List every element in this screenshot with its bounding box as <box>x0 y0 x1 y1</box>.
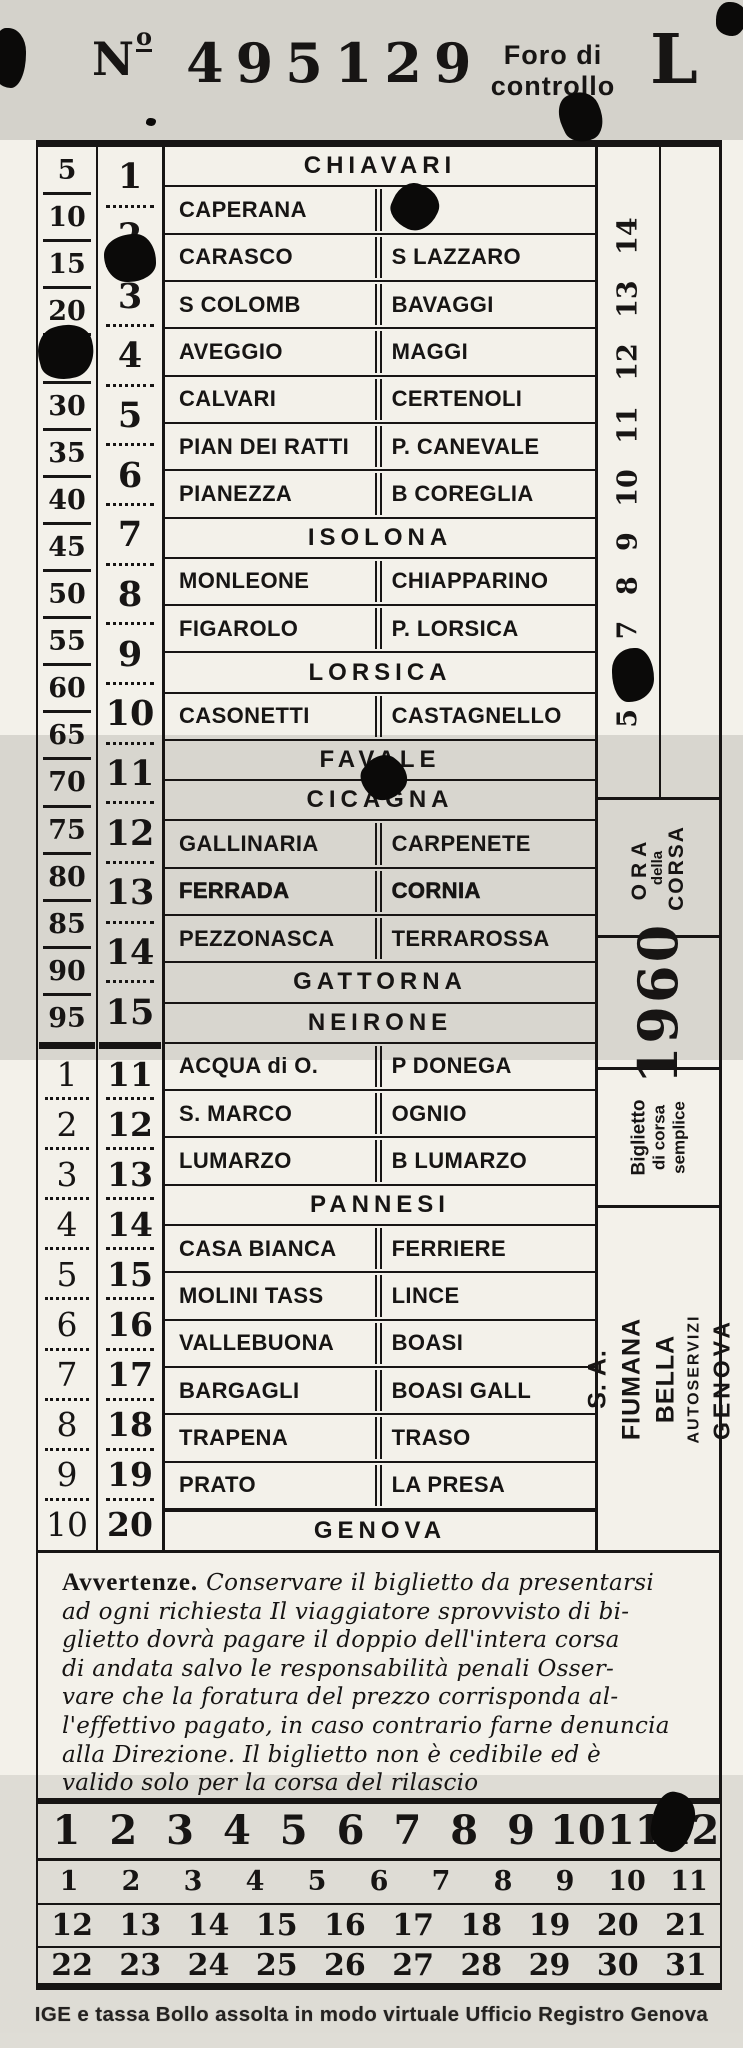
station-section-header: NEIRONE <box>165 1004 595 1044</box>
station-row: PEZZONASCATERRAROSSA <box>165 916 595 963</box>
notice-line: Avvertenze.Conservare il biglietto da pr… <box>62 1569 693 1598</box>
day-number: 21 <box>652 1908 720 1943</box>
station-row: PIAN DEI RATTIP. CANEVALE <box>165 424 595 471</box>
station-row: S COLOMBBAVAGGI <box>165 282 595 329</box>
calendar-days-12-21: 12131415161718192021 <box>38 1905 720 1948</box>
fare-upper-series: 5101520253035404550556065707580859095 <box>38 147 96 1042</box>
column-divider <box>375 1275 382 1316</box>
station-name-right: LA PRESA <box>382 1472 595 1498</box>
station-name-left: CAPERANA <box>165 197 375 223</box>
station-name-right: P. CANEVALE <box>382 434 595 460</box>
fare-value: 60 <box>38 665 96 712</box>
station-name-right: CASTAGNELLO <box>382 703 595 729</box>
day-number: 17 <box>379 1908 447 1943</box>
fare-value: 7 <box>38 1350 96 1400</box>
station-row: MOLINI TASSLINCE <box>165 1273 595 1320</box>
day-number: 22 <box>38 1948 106 1983</box>
fare-value: 40 <box>38 477 96 524</box>
column-divider <box>375 331 382 372</box>
hour-strip: 5 6 7 8 9 10 11 12 13 14 15 16 17 18 19 … <box>598 147 719 1550</box>
station-row: GALLINARIACARPENETE <box>165 821 595 868</box>
stage-number: 15 <box>98 982 162 1042</box>
stage-number: 13 <box>98 1149 162 1199</box>
station-name-right: B LUMARZO <box>382 1148 595 1174</box>
day-number: 16 <box>311 1908 379 1943</box>
fare-value: 8 <box>38 1400 96 1450</box>
section-letter: L <box>650 26 698 94</box>
stage-number: 5 <box>98 386 162 446</box>
column-divider <box>375 284 382 325</box>
day-number: 12 <box>38 1908 106 1943</box>
day-number: 3 <box>162 1866 224 1897</box>
column-divider <box>375 237 382 278</box>
stage-number: 1 <box>98 147 162 207</box>
day-number: 23 <box>106 1948 174 1983</box>
fare-table: 5101520253035404550556065707580859095 12… <box>36 140 722 1553</box>
month-number: 3 <box>152 1807 209 1854</box>
stage-number: 12 <box>98 1099 162 1149</box>
station-row: AVEGGIOMAGGI <box>165 329 595 376</box>
station-row: LUMARZOB LUMARZO <box>165 1138 595 1185</box>
station-row: PRATOLA PRESA <box>165 1463 595 1510</box>
fare-value: 55 <box>38 618 96 665</box>
day-number: 15 <box>243 1908 311 1943</box>
station-name-right: TRASO <box>382 1425 595 1451</box>
notice-line: valido solo per la corsa del rilascio <box>62 1769 693 1798</box>
stage-number: 14 <box>98 923 162 983</box>
series-divider-bar <box>99 1042 161 1049</box>
fare-value: 85 <box>38 901 96 948</box>
punch-hole <box>104 234 156 282</box>
day-number: 4 <box>224 1866 286 1897</box>
station-row: CALVARICERTENOLI <box>165 377 595 424</box>
station-name-left: CASA BIANCA <box>165 1236 375 1262</box>
day-number: 30 <box>584 1948 652 1983</box>
month-number: 2 <box>95 1807 152 1854</box>
stage-number: 17 <box>98 1350 162 1400</box>
station-name-right: FERRIERE <box>382 1236 595 1262</box>
stage-number: 7 <box>98 505 162 565</box>
station-row: FERRADACORNIA <box>165 869 595 916</box>
station-section-header: ISOLONA <box>165 519 595 559</box>
punch-hole <box>612 648 654 702</box>
column-divider <box>375 1417 382 1458</box>
fare-value: 65 <box>38 712 96 759</box>
edge-ink-mark <box>0 28 26 88</box>
notice-line: ad ogni richiesta Il viaggiatore sprovvi… <box>62 1598 693 1627</box>
station-name-right: TERRAROSSA <box>382 926 595 952</box>
column-divider <box>375 608 382 649</box>
station-name-left: PIAN DEI RATTI <box>165 434 375 460</box>
day-number: 27 <box>379 1948 447 1983</box>
station-row: TRAPENATRASO <box>165 1415 595 1462</box>
station-name-left: ACQUA di O. <box>165 1053 375 1079</box>
station-name-left: CALVARI <box>165 386 375 412</box>
station-list: CHIAVARICAPERANARICARASCOS LAZZAROS COLO… <box>165 147 598 1550</box>
fare-value: 15 <box>38 241 96 288</box>
month-number: 8 <box>436 1807 493 1854</box>
day-number: 7 <box>410 1866 472 1897</box>
station-name-left: MONLEONE <box>165 568 375 594</box>
station-name-right: B COREGLIA <box>382 481 595 507</box>
station-name-right: S LAZZARO <box>382 244 595 270</box>
station-name-left: PIANEZZA <box>165 481 375 507</box>
column-divider <box>375 1140 382 1181</box>
station-section-header: GATTORNA <box>165 963 595 1003</box>
day-number: 11 <box>658 1866 720 1897</box>
day-number: 8 <box>472 1866 534 1897</box>
station-row: CAPERANARI <box>165 187 595 234</box>
station-section-header: GENOVA <box>165 1510 595 1550</box>
numero-abbreviation: No <box>92 36 152 82</box>
stage-number: 16 <box>98 1299 162 1349</box>
station-name-left: GALLINARIA <box>165 831 375 857</box>
station-row: FIGAROLOP. LORSICA <box>165 606 595 653</box>
stage-number: 10 <box>98 684 162 744</box>
station-name-left: S. MARCO <box>165 1101 375 1127</box>
station-name-right: BAVAGGI <box>382 292 595 318</box>
stage-number: 12 <box>98 803 162 863</box>
notice-line: di andata salvo le responsabilità penali… <box>62 1655 693 1684</box>
day-number: 1 <box>38 1866 100 1897</box>
fare-value: 80 <box>38 854 96 901</box>
fare-value: 45 <box>38 524 96 571</box>
station-row: VALLEBUONABOASI <box>165 1321 595 1368</box>
stage-number: 18 <box>98 1400 162 1450</box>
station-name-right: BOASI GALL <box>382 1378 595 1404</box>
calendar-months: 123456789101112 <box>38 1804 720 1861</box>
foro-di-controllo-label: Foro di controllo <box>468 40 638 102</box>
station-name-left: AVEGGIO <box>165 339 375 365</box>
month-number: 10 <box>549 1807 606 1854</box>
month-number: 4 <box>208 1807 265 1854</box>
station-section-header: PANNESI <box>165 1186 595 1226</box>
station-name-left: MOLINI TASS <box>165 1283 375 1309</box>
ticket-type-label: Biglietto di corsa semplice <box>598 1070 719 1208</box>
fare-value: 35 <box>38 430 96 477</box>
column-divider <box>375 918 382 959</box>
fare-value: 90 <box>38 948 96 995</box>
station-name-right: MAGGI <box>382 339 595 365</box>
fare-value: 5 <box>38 147 96 194</box>
day-number: 29 <box>515 1948 583 1983</box>
column-divider <box>375 1093 382 1134</box>
station-row: CARASCOS LAZZARO <box>165 235 595 282</box>
day-number: 18 <box>447 1908 515 1943</box>
tax-notice: IGE e tassa Bollo assolta in modo virtua… <box>0 2003 743 2027</box>
station-section-header: CHIAVARI <box>165 147 595 187</box>
bus-ticket: No 495129 Foro di controllo L 5101520253… <box>0 0 743 2048</box>
station-name-left: CARASCO <box>165 244 375 270</box>
fare-value: 6 <box>38 1299 96 1349</box>
series-divider-bar <box>39 1042 95 1049</box>
edge-ink-mark <box>716 2 743 36</box>
fare-value: 1 <box>38 1049 96 1099</box>
station-name-left: VALLEBUONA <box>165 1330 375 1356</box>
column-divider <box>375 561 382 602</box>
fare-value: 75 <box>38 807 96 854</box>
year-label: 1960 <box>598 938 719 1070</box>
station-row: ACQUA di O.P DONEGA <box>165 1044 595 1091</box>
column-divider <box>375 1228 382 1269</box>
station-name-right: P. LORSICA <box>382 616 595 642</box>
ora-della-corsa-label: ORA della CORSA <box>598 800 719 938</box>
column-divider <box>375 1370 382 1411</box>
column-divider <box>375 871 382 912</box>
day-calendar: 123456789101112 1234567891011 1213141516… <box>36 1798 722 1990</box>
stage-number: 20 <box>98 1500 162 1550</box>
fare-value: 9 <box>38 1450 96 1500</box>
day-number: 9 <box>534 1866 596 1897</box>
column-divider <box>375 696 382 737</box>
company-label: S. A. FIUMANA BELLA AUTOSERVIZI GENOVA <box>598 1208 719 1550</box>
stage-number: 11 <box>98 744 162 804</box>
fare-value: 5 <box>38 1249 96 1299</box>
ink-dot <box>146 118 156 126</box>
stage-lower-series: 11121314151617181920 <box>98 1049 162 1550</box>
station-name-right: BOASI <box>382 1330 595 1356</box>
hour-numbers-section: 5 6 7 8 9 10 11 12 13 14 15 16 17 18 19 … <box>598 147 719 800</box>
notice: Avvertenze.Conservare il biglietto da pr… <box>36 1553 722 1798</box>
notice-title: Avvertenze. <box>62 1569 198 1596</box>
station-name-right: CARPENETE <box>382 831 595 857</box>
month-number: 5 <box>265 1807 322 1854</box>
stage-number: 4 <box>98 326 162 386</box>
fare-value: 3 <box>38 1149 96 1199</box>
station-name-left: BARGAGLI <box>165 1378 375 1404</box>
station-name-left: PRATO <box>165 1472 375 1498</box>
day-number: 13 <box>106 1908 174 1943</box>
column-divider <box>375 1323 382 1364</box>
column-divider <box>375 379 382 420</box>
station-name-right: CHIAPPARINO <box>382 568 595 594</box>
stage-number: 14 <box>98 1199 162 1249</box>
serial-number: No 495129 <box>92 36 484 90</box>
day-number: 14 <box>174 1908 242 1943</box>
calendar-days-1-11: 1234567891011 <box>38 1861 720 1905</box>
station-name-left: S COLOMB <box>165 292 375 318</box>
day-number: 5 <box>286 1866 348 1897</box>
station-name-left: FIGAROLO <box>165 616 375 642</box>
day-number: 2 <box>100 1866 162 1897</box>
stage-number: 15 <box>98 1249 162 1299</box>
stage-column: 123456789101112131415 111213141516171819… <box>98 147 165 1550</box>
station-row: BARGAGLIBOASI GALL <box>165 1368 595 1415</box>
fare-value: 10 <box>38 1500 96 1550</box>
serial-digits: 495129 <box>186 36 483 90</box>
column-divider <box>375 473 382 514</box>
station-name-right: OGNIO <box>382 1101 595 1127</box>
stage-number: 13 <box>98 863 162 923</box>
day-number: 28 <box>447 1948 515 1983</box>
station-name-left: PEZZONASCA <box>165 926 375 952</box>
month-number: 9 <box>493 1807 550 1854</box>
station-row: PIANEZZAB COREGLIA <box>165 471 595 518</box>
station-name-left: CASONETTI <box>165 703 375 729</box>
fare-value: 50 <box>38 571 96 618</box>
station-row: CASONETTICASTAGNELLO <box>165 694 595 741</box>
day-number: 25 <box>243 1948 311 1983</box>
day-number: 19 <box>515 1908 583 1943</box>
stage-number: 6 <box>98 445 162 505</box>
fare-value: 95 <box>38 995 96 1042</box>
column-divider <box>375 823 382 864</box>
notice-line: vare che la foratura del prezzo corrispo… <box>62 1683 693 1712</box>
station-name-right: P DONEGA <box>382 1053 595 1079</box>
column-divider <box>375 189 382 230</box>
day-number: 10 <box>596 1866 658 1897</box>
calendar-days-22-31: 22232425262728293031 <box>38 1948 720 1983</box>
column-divider <box>375 1046 382 1087</box>
day-number: 20 <box>584 1908 652 1943</box>
notice-body: ad ogni richiesta Il viaggiatore sprovvi… <box>62 1598 693 1798</box>
day-number: 26 <box>311 1948 379 1983</box>
station-name-left: FERRADA <box>165 878 375 904</box>
month-number: 1 <box>38 1807 95 1854</box>
day-number: 24 <box>174 1948 242 1983</box>
column-divider <box>375 1465 382 1506</box>
month-number: 7 <box>379 1807 436 1854</box>
fare-lower-series: 12345678910 <box>38 1049 96 1550</box>
month-number: 6 <box>322 1807 379 1854</box>
station-row: S. MARCOOGNIO <box>165 1091 595 1138</box>
day-number: 31 <box>652 1948 720 1983</box>
column-divider <box>375 426 382 467</box>
station-row: CASA BIANCAFERRIERE <box>165 1226 595 1273</box>
stage-number: 8 <box>98 565 162 625</box>
fare-value: 10 <box>38 194 96 241</box>
stage-number: 19 <box>98 1450 162 1500</box>
day-number: 6 <box>348 1866 410 1897</box>
fare-value: 2 <box>38 1099 96 1149</box>
station-name-left: LUMARZO <box>165 1148 375 1174</box>
notice-line: l'effettivo pagato, in caso contrario fa… <box>62 1712 693 1741</box>
station-name-right: CORNIA <box>382 878 595 904</box>
fare-value: 30 <box>38 383 96 430</box>
station-name-left: TRAPENA <box>165 1425 375 1451</box>
notice-line: alla Direzione. Il biglietto non è cedib… <box>62 1741 693 1770</box>
stage-number: 9 <box>98 624 162 684</box>
station-name-right: LINCE <box>382 1283 595 1309</box>
stage-number: 11 <box>98 1049 162 1099</box>
notice-line: glietto dovrà pagare il doppio dell'inte… <box>62 1626 693 1655</box>
station-section-header: LORSICA <box>165 653 595 693</box>
station-row: MONLEONECHIAPPARINO <box>165 559 595 606</box>
fare-value: 70 <box>38 759 96 806</box>
fare-value: 4 <box>38 1199 96 1249</box>
hour-numbers-outer: 15 16 17 18 19 20 21 22 23 24 <box>661 147 743 797</box>
station-name-right: CERTENOLI <box>382 386 595 412</box>
